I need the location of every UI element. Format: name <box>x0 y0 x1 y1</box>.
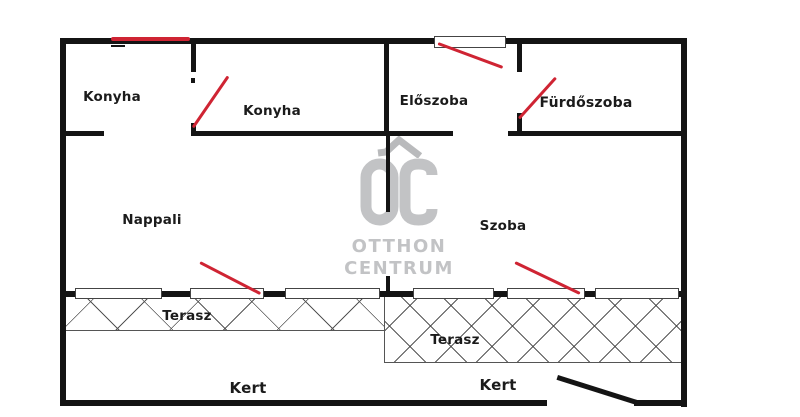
wall-kitchenright-bottom <box>191 131 388 136</box>
wall-left <box>60 38 66 406</box>
wall-bottom-right <box>634 400 687 406</box>
window-6 <box>595 288 679 299</box>
wall-hall-bathroom-top <box>517 38 522 72</box>
terrace-left-edge-line <box>66 330 384 331</box>
window-marker-top <box>111 37 190 41</box>
wall-right <box>681 38 687 407</box>
terrace-left-paving <box>66 297 384 330</box>
garden-gate-line <box>556 375 638 405</box>
window-4 <box>413 288 494 299</box>
roof-icon <box>376 136 422 158</box>
label-garden-right: Kert <box>480 376 517 394</box>
wall-kitchen-divider-top <box>191 38 196 72</box>
terrace-right-edge-line <box>384 362 686 363</box>
wall-hall-bottom <box>388 131 453 136</box>
room-label-living: Nappali <box>122 212 182 228</box>
wall-living-room-divider <box>386 136 390 212</box>
watermark-line1: OTTHON <box>352 236 447 257</box>
room-label-bathroom: Fürdőszoba <box>540 95 633 111</box>
window-3 <box>285 288 380 299</box>
window-1 <box>75 288 162 299</box>
room-label-kitchen-right: Konyha <box>243 103 301 119</box>
room-label-room: Szoba <box>480 218 527 234</box>
label-garden-left: Kert <box>230 379 267 397</box>
door-swing-kitchen <box>192 76 230 129</box>
wall-kitchen-divider-stub <box>191 78 195 83</box>
terrace-right-paving <box>385 297 681 362</box>
label-terrace-left: Terasz <box>162 308 211 324</box>
window-marker-tick <box>111 45 125 47</box>
wall-bottom-left <box>60 400 547 406</box>
terrace-right-side-line <box>384 297 385 363</box>
floor-plan: OTTHON CENTRUM Konyha Konyha Előszoba Fü… <box>0 0 800 417</box>
wall-bathroom-bottom <box>508 131 687 136</box>
oc-monogram-icon <box>358 158 440 226</box>
wall-kitchenleft-bottom <box>60 131 104 136</box>
room-label-kitchen-left: Konyha <box>83 89 141 105</box>
label-terrace-right: Terasz <box>430 332 479 348</box>
wall-kitchen-hall-divider <box>384 38 389 136</box>
room-label-hall: Előszoba <box>400 93 469 109</box>
watermark-line2: CENTRUM <box>344 258 454 279</box>
